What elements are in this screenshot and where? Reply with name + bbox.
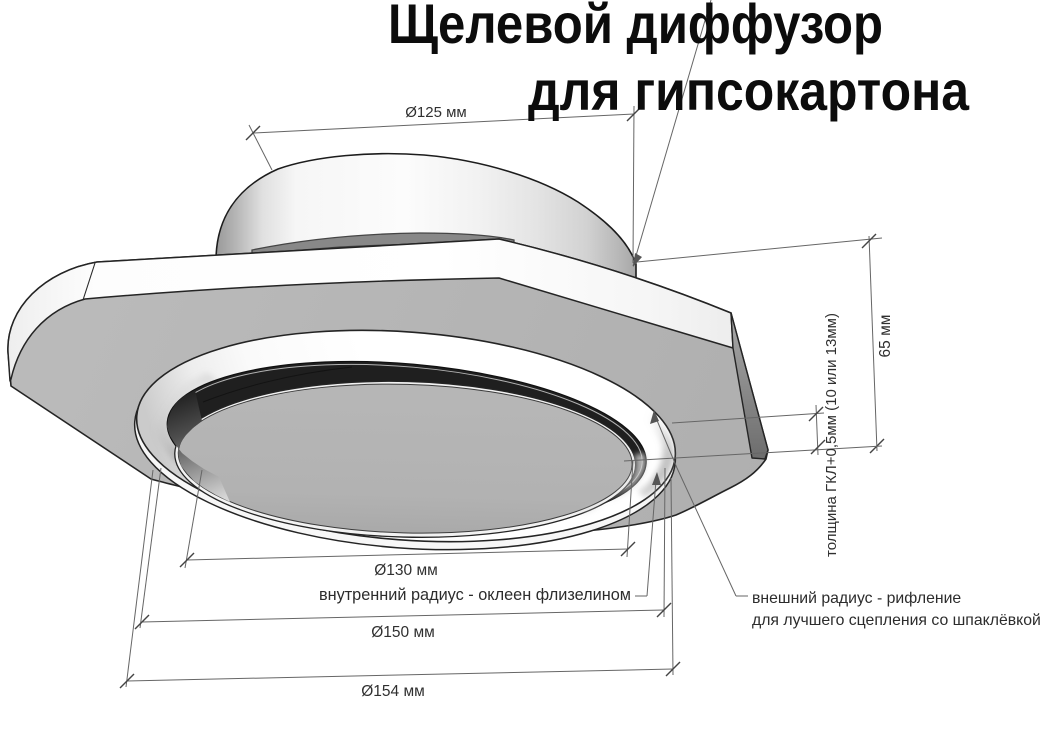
svg-text:Щелевой диффузор: Щелевой диффузор (388, 0, 883, 55)
svg-text:Ø150 мм: Ø150 мм (371, 624, 435, 641)
svg-text:толщина ГКЛ+0,5мм (10 или 13мм: толщина ГКЛ+0,5мм (10 или 13мм) (823, 313, 840, 557)
svg-text:Ø154 мм: Ø154 мм (361, 683, 425, 700)
svg-text:для гипсокартона: для гипсокартона (528, 59, 970, 122)
svg-text:Ø130 мм: Ø130 мм (374, 562, 438, 579)
svg-text:внешний радиус - рифление: внешний радиус - рифление (752, 590, 961, 607)
svg-text:65 мм: 65 мм (877, 315, 894, 358)
svg-text:внутренний радиус - оклеен фли: внутренний радиус - оклеен флизелином (319, 586, 631, 604)
svg-text:Ø125 мм: Ø125 мм (405, 104, 467, 121)
svg-text:для лучшего сцепления со шпакл: для лучшего сцепления со шпаклёвкой (752, 612, 1040, 629)
